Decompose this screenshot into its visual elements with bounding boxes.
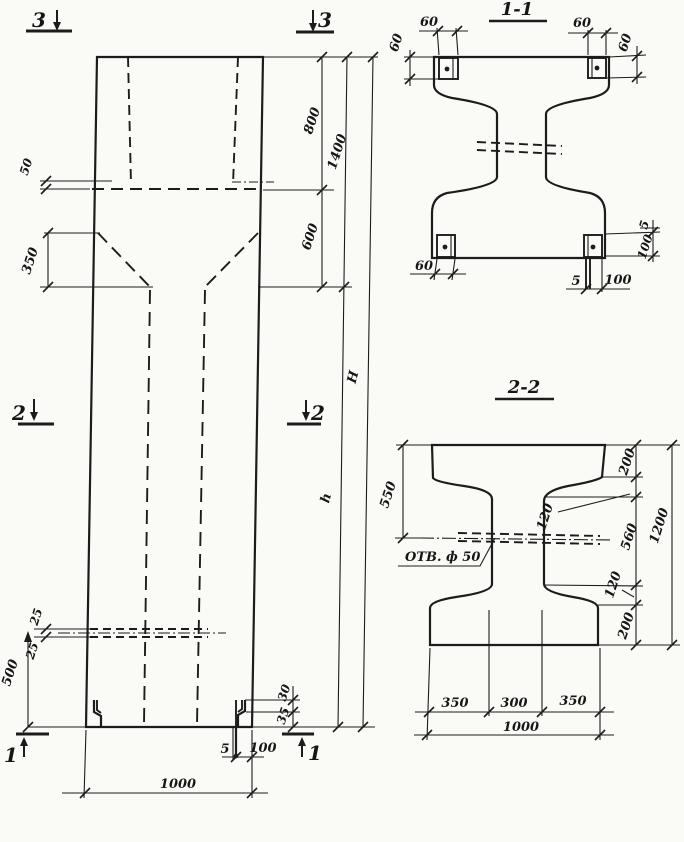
s22-label-300: 300 <box>500 696 527 711</box>
section-2-2-title: 2-2 <box>507 377 541 398</box>
s11-label-60-top-right-h: 60 <box>573 16 591 31</box>
s22-label-1200: 1200 <box>647 506 672 545</box>
s22-label-200-bottom: 200 <box>615 611 638 642</box>
s22-label-120-bottom: 120 <box>602 570 625 600</box>
marker-2-right-arrowhead <box>302 412 310 421</box>
s22-label-550: 550 <box>377 480 400 510</box>
section-1-1-outline <box>432 57 609 258</box>
dim-label-1000-elevation: 1000 <box>160 777 196 792</box>
section-1-1-tick-marks <box>405 26 658 294</box>
dim-label-50: 50 <box>17 156 36 177</box>
hole-callout-label: ОТВ. ф 50 <box>405 550 480 565</box>
dim-label-H: H <box>345 369 363 386</box>
marker-1-right-arrowhead <box>298 737 306 746</box>
section-marker-2-right: 2 <box>287 400 325 425</box>
s22-label-350-right: 350 <box>559 694 586 709</box>
base-shoe-left-inner <box>97 700 101 713</box>
marker-2-right-label: 2 <box>310 401 325 425</box>
section-marker-3-right: 3 <box>296 8 334 32</box>
dim-label-350: 350 <box>19 246 42 276</box>
column-outline <box>86 57 263 727</box>
s11-label-60-top-left-h: 60 <box>420 15 438 30</box>
s11-label-60-top-left-v: 60 <box>387 32 407 54</box>
embedded-plate-top-right <box>588 58 606 78</box>
marker-3-right-label: 3 <box>318 8 332 32</box>
embedded-plate-bottom-left <box>437 235 455 257</box>
plate-bottom-right-anchor-dot <box>591 245 596 250</box>
dim-label-1400: 1400 <box>325 132 350 171</box>
head-pocket-hidden-right <box>233 57 238 184</box>
column-drawing-svg: 3 3 2 2 1 <box>0 0 684 842</box>
elevation-tick-marks <box>23 52 378 798</box>
section-marker-1-right: 1 <box>282 734 322 765</box>
plate-top-left-anchor-dot <box>445 67 450 72</box>
section-1-1-view: 1-1 60 60 60 <box>387 0 660 294</box>
head-pocket-hidden-left <box>128 57 131 184</box>
marker-1-right-label: 1 <box>308 741 322 765</box>
web-taper-hidden-right <box>205 233 258 287</box>
dim-label-800: 800 <box>301 106 324 136</box>
embedded-plate-bottom-right <box>584 235 602 257</box>
section-1-1-hole-hidden <box>477 142 562 154</box>
s11-label-5-bottom: 5 <box>571 274 580 289</box>
marker-1-left-arrowhead <box>20 737 28 746</box>
dim-label-h: h <box>318 492 335 505</box>
embedded-plate-top-left <box>439 58 458 79</box>
section-2-2-view: 2-2 ОТВ. ф 50 550 200 120 560 120 200 12… <box>377 377 680 740</box>
dim-label-25-top: 25 <box>27 607 46 628</box>
dim-label-25-bottom: 25 <box>23 641 42 662</box>
plate-bottom-left-anchor-dot <box>443 245 448 250</box>
dim-label-5-base: 5 <box>220 742 229 757</box>
section-marker-3-left: 3 <box>26 8 72 32</box>
dim-label-100-base: 100 <box>249 741 276 756</box>
marker-2-left-label: 2 <box>11 401 26 425</box>
s22-label-120-top: 120 <box>534 502 557 532</box>
section-2-2-dim-lines <box>395 445 680 740</box>
web-taper-hidden-left <box>98 233 150 287</box>
plate-top-right-anchor-dot <box>595 66 600 71</box>
s22-label-350-left: 350 <box>441 696 468 711</box>
dim-500-arrow <box>24 631 32 642</box>
section-marker-1-left: 1 <box>4 734 49 767</box>
s11-label-60-top-right-v: 60 <box>616 32 636 54</box>
dim-label-35: 35 <box>274 706 292 726</box>
s22-label-560: 560 <box>618 522 641 552</box>
web-hidden-left <box>144 290 150 724</box>
s22-label-1000: 1000 <box>503 720 539 735</box>
dim-label-500: 500 <box>0 658 22 688</box>
marker-1-left-label: 1 <box>4 743 18 767</box>
s11-label-60-bottom-left: 60 <box>415 259 433 274</box>
marker-3-left-label: 3 <box>32 8 46 32</box>
section-2-2-hole-axis <box>420 538 612 540</box>
section-1-1-title: 1-1 <box>501 0 534 20</box>
section-2-2-hole-hidden <box>458 533 600 544</box>
web-hidden-right <box>197 290 205 724</box>
section-2-2-tick-marks <box>398 440 677 740</box>
elevation-view: 3 3 2 2 1 <box>0 8 378 798</box>
section-marker-2-left: 2 <box>11 399 54 425</box>
s11-label-5-right: 5 <box>636 219 652 231</box>
section-2-2-outline <box>430 445 605 645</box>
s11-label-100-bottom: 100 <box>604 273 631 288</box>
section-1-1-dim-lines <box>404 28 660 292</box>
base-shoe-right-inner <box>238 700 242 712</box>
drawing-sheet: 3 3 2 2 1 <box>0 0 684 842</box>
dim-label-600: 600 <box>299 222 322 252</box>
marker-2-left-arrowhead <box>30 412 38 421</box>
section-1-1-plate-thickness-lines <box>586 258 590 289</box>
